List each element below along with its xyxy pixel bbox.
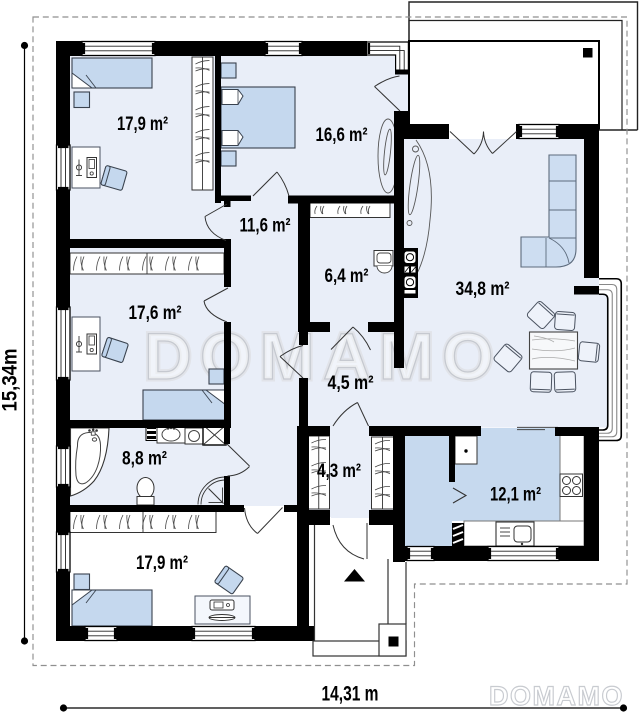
svg-text:4,3 m²: 4,3 m² [317,461,361,482]
svg-text:34,8 m²: 34,8 m² [456,279,510,300]
svg-text:11,6 m²: 11,6 m² [240,216,291,237]
svg-text:8,8 m²: 8,8 m² [122,449,167,470]
svg-text:17,9 m²: 17,9 m² [136,553,188,574]
svg-text:12,1 m²: 12,1 m² [490,485,541,506]
svg-text:4,5 m²: 4,5 m² [328,373,374,394]
svg-text:6,4 m²: 6,4 m² [325,266,369,287]
svg-text:16,6 m²: 16,6 m² [316,125,368,146]
svg-text:15,34m: 15,34m [0,349,22,412]
svg-text:DOMAMO: DOMAMO [489,681,624,711]
svg-text:17,6 m²: 17,6 m² [129,303,182,324]
svg-text:14,31 m: 14,31 m [322,683,379,706]
svg-text:17,9 m²: 17,9 m² [117,114,168,135]
